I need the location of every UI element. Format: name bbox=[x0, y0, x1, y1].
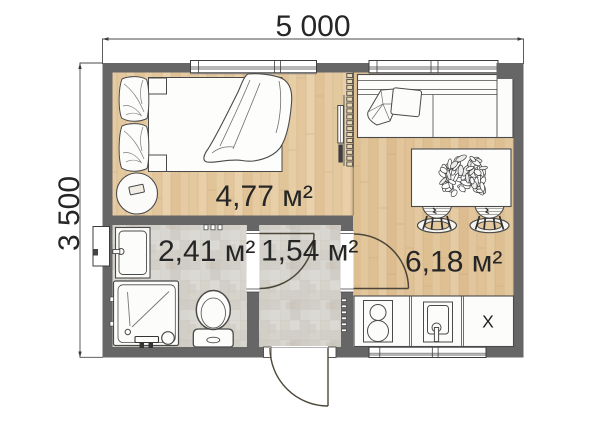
svg-text:4,77 м²: 4,77 м² bbox=[216, 180, 313, 213]
svg-text:1,54 м²: 1,54 м² bbox=[261, 235, 358, 268]
svg-text:2,41 м²: 2,41 м² bbox=[158, 235, 255, 268]
svg-text:5 000: 5 000 bbox=[275, 10, 350, 43]
svg-text:6,18 м²: 6,18 м² bbox=[405, 246, 502, 279]
svg-text:3 500: 3 500 bbox=[53, 176, 86, 251]
svg-text:X: X bbox=[482, 312, 494, 332]
